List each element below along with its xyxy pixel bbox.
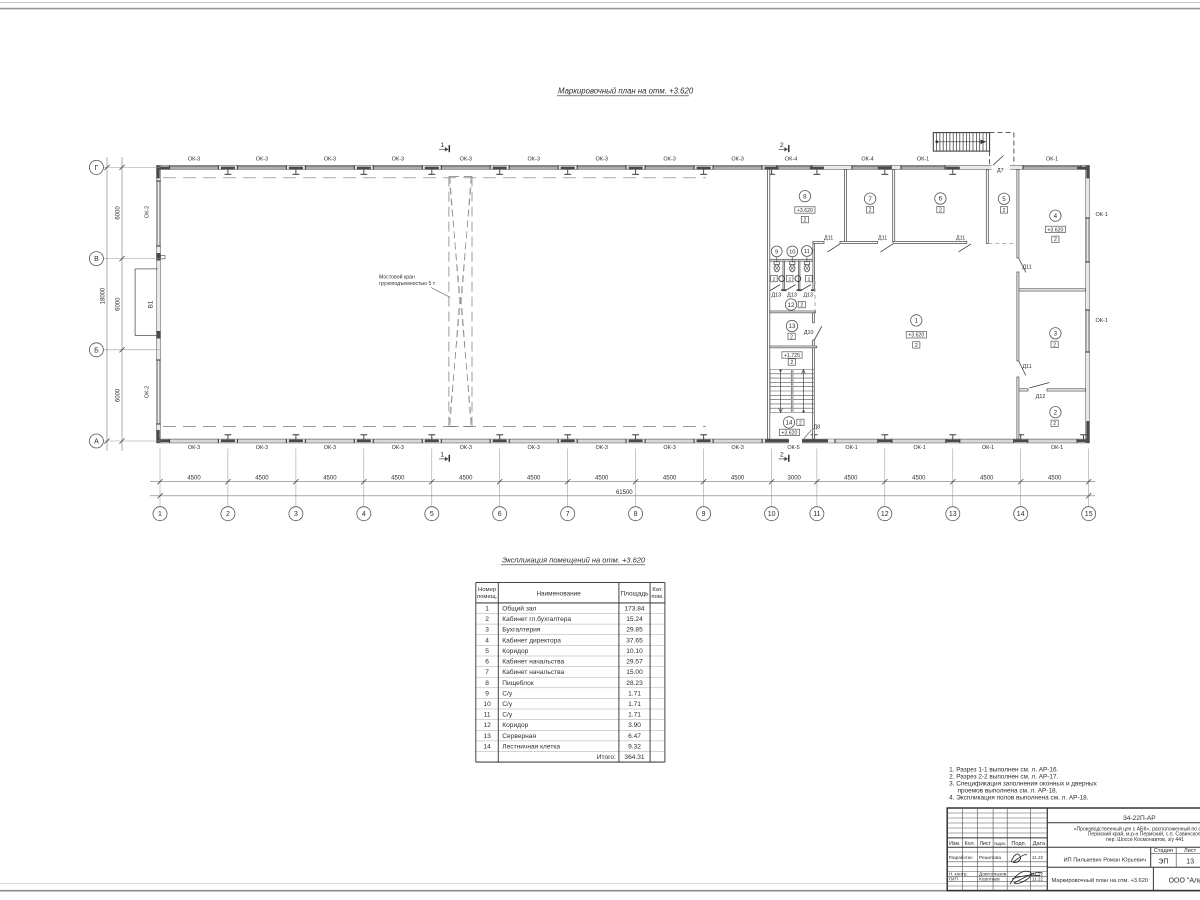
svg-text:4500: 4500 (459, 476, 473, 482)
svg-text:ОК-1: ОК-1 (1051, 445, 1063, 451)
svg-text:Изм.: Изм. (949, 841, 960, 847)
svg-text:Решетова: Решетова (979, 855, 1001, 861)
svg-text:Д11: Д11 (1023, 364, 1032, 370)
svg-text:С/у: С/у (502, 712, 513, 719)
svg-text:1. Разрез 1-1 выполнен см. л.: 1. Разрез 1-1 выполнен см. л. АР-16. (949, 766, 1058, 773)
svg-text:5: 5 (1002, 196, 1006, 203)
svg-text:2: 2 (780, 142, 784, 149)
svg-text:37.65: 37.65 (626, 637, 643, 644)
svg-text:1: 1 (158, 511, 162, 518)
svg-text:4500: 4500 (731, 476, 745, 482)
svg-text:2: 2 (939, 208, 942, 214)
svg-text:помещ.: помещ. (477, 594, 498, 600)
svg-text:Д11: Д11 (824, 236, 833, 242)
svg-text:Г: Г (95, 165, 99, 172)
svg-text:4500: 4500 (912, 476, 926, 482)
svg-text:4500: 4500 (527, 476, 541, 482)
svg-text:Площадь: Площадь (621, 590, 649, 597)
svg-text:2: 2 (1054, 237, 1057, 243)
svg-text:ОК-1: ОК-1 (917, 157, 929, 163)
svg-text:10.10: 10.10 (626, 648, 643, 655)
svg-text:Д11: Д11 (878, 236, 887, 242)
svg-text:3: 3 (485, 627, 489, 634)
svg-text:1: 1 (440, 142, 444, 149)
svg-text:2: 2 (800, 303, 803, 309)
svg-text:18000: 18000 (100, 287, 106, 304)
svg-text:9: 9 (702, 511, 706, 518)
svg-text:А: А (94, 439, 99, 446)
svg-text:9.32: 9.32 (628, 744, 641, 751)
svg-text:7: 7 (485, 669, 489, 676)
svg-text:Бухгалтерия: Бухгалтерия (502, 627, 541, 634)
svg-text:Коротаев: Коротаев (979, 877, 1000, 883)
svg-text:2: 2 (1054, 409, 1058, 416)
svg-text:1.71: 1.71 (628, 690, 641, 697)
svg-text:4500: 4500 (1048, 476, 1062, 482)
svg-text:+1.725: +1.725 (784, 353, 800, 359)
svg-text:34-22П-АР: 34-22П-АР (1123, 815, 1156, 822)
svg-text:Подп.: Подп. (1011, 841, 1026, 847)
svg-text:ОК-4: ОК-4 (785, 157, 797, 163)
svg-text:Кабинет директора: Кабинет директора (502, 636, 561, 644)
svg-text:10: 10 (789, 250, 795, 256)
svg-text:ОК-3: ОК-3 (731, 445, 743, 451)
svg-text:Д10: Д10 (804, 330, 814, 336)
svg-text:12: 12 (483, 722, 491, 729)
svg-text:ОК-3: ОК-3 (256, 157, 268, 163)
svg-text:3. Спецификация заполнения око: 3. Спецификация заполнения оконных и две… (949, 780, 1097, 787)
svg-text:ГИП: ГИП (949, 877, 958, 882)
svg-text:4: 4 (485, 637, 489, 644)
svg-text:15: 15 (1085, 511, 1093, 518)
svg-text:Д7: Д7 (997, 168, 1004, 174)
svg-text:2: 2 (1003, 208, 1006, 214)
svg-text:15.00: 15.00 (626, 669, 643, 676)
svg-text:ОК-3: ОК-3 (596, 445, 608, 451)
svg-text:11: 11 (804, 249, 810, 255)
svg-text:ОК-3: ОК-3 (324, 157, 336, 163)
svg-text:Лестничная клетка: Лестничная клетка (502, 744, 560, 751)
svg-text:ОК-1: ОК-1 (982, 445, 994, 451)
svg-text:1: 1 (440, 451, 444, 458)
svg-text:12: 12 (881, 511, 889, 518)
svg-text:6.47: 6.47 (628, 733, 641, 740)
svg-text:6000: 6000 (115, 388, 121, 402)
svg-text:1.71: 1.71 (628, 712, 641, 719)
svg-text:8: 8 (634, 511, 638, 518)
svg-text:8: 8 (803, 193, 807, 200)
svg-text:3.90: 3.90 (628, 722, 641, 729)
svg-text:Д12: Д12 (1036, 394, 1046, 400)
svg-text:1: 1 (915, 318, 919, 325)
svg-text:2: 2 (788, 277, 791, 283)
svg-text:29.57: 29.57 (626, 659, 643, 666)
svg-text:ЭП: ЭП (1158, 857, 1168, 866)
svg-text:4500: 4500 (980, 476, 994, 482)
svg-text:4500: 4500 (255, 476, 269, 482)
svg-text:Маркировочный план на отм. +3: Маркировочный план на отм. +3.620 (558, 87, 694, 96)
svg-text:Мостовой кран: Мостовой кран (379, 274, 415, 281)
svg-text:13: 13 (949, 511, 957, 518)
svg-text:4: 4 (362, 511, 366, 518)
svg-text:пом.: пом. (651, 594, 664, 600)
svg-text:Итого:: Итого: (597, 754, 616, 761)
svg-text:ОК-4: ОК-4 (861, 157, 873, 163)
svg-text:ОК-3: ОК-3 (392, 157, 404, 163)
svg-text:ООО "Альянс: ООО "Альянс (1169, 878, 1200, 885)
svg-text:+3.620: +3.620 (781, 430, 797, 436)
svg-text:2: 2 (485, 616, 489, 623)
svg-text:8: 8 (485, 680, 489, 687)
svg-text:В: В (94, 256, 99, 263)
svg-text:13: 13 (483, 733, 491, 740)
svg-text:5: 5 (485, 648, 489, 655)
svg-text:Экспликация помещений на отм.: Экспликация помещений на отм. +3.620 (502, 556, 646, 565)
svg-text:Общий зал: Общий зал (502, 605, 536, 613)
svg-text:173.84: 173.84 (624, 606, 645, 613)
svg-text:6: 6 (498, 511, 502, 518)
svg-text:11.22: 11.22 (1032, 855, 1044, 860)
svg-text:Дата: Дата (1033, 841, 1046, 847)
svg-text:ОК-3: ОК-3 (460, 157, 472, 163)
svg-text:ОК-2: ОК-2 (145, 206, 151, 218)
svg-text:Д13: Д13 (771, 293, 781, 299)
svg-text:1: 1 (485, 606, 489, 613)
svg-text:+3.620: +3.620 (797, 208, 813, 214)
svg-text:ОК-3: ОК-3 (663, 445, 675, 451)
svg-text:10: 10 (768, 511, 776, 518)
svg-text:ОК-1: ОК-1 (1096, 318, 1108, 324)
svg-text:4500: 4500 (663, 476, 677, 482)
svg-text:Коридор: Коридор (502, 648, 528, 655)
svg-text:ОК-3: ОК-3 (596, 157, 608, 163)
svg-text:пер. Шоссе Космонавтов, з/у 44: пер. Шоссе Космонавтов, з/у 441 (1106, 837, 1184, 843)
svg-text:13: 13 (1186, 857, 1194, 866)
svg-text:6: 6 (939, 196, 943, 203)
svg-text:Разработал: Разработал (949, 855, 973, 860)
svg-text:ОК-1: ОК-1 (1096, 212, 1108, 218)
svg-text:Кабинет начальства: Кабинет начальства (502, 658, 564, 666)
svg-text:Маркировочный план на отм. +3.: Маркировочный план на отм. +3.620 (1052, 877, 1149, 884)
svg-text:ОК-3: ОК-3 (731, 157, 743, 163)
svg-text:6000: 6000 (115, 297, 121, 311)
svg-text:грузоподъемностью 5 т: грузоподъемностью 5 т (379, 281, 436, 287)
svg-text:7: 7 (868, 196, 872, 203)
svg-text:Пищеблок: Пищеблок (502, 679, 533, 687)
svg-text:+3.620: +3.620 (908, 333, 924, 339)
svg-text:проемов выполнена см. л. АР-18: проемов выполнена см. л. АР-18. (958, 787, 1058, 794)
svg-text:11.22: 11.22 (1032, 877, 1044, 882)
svg-text:3: 3 (1054, 331, 1058, 338)
svg-text:15.24: 15.24 (626, 616, 643, 623)
svg-text:3: 3 (294, 511, 298, 518)
svg-text:Довгоглазов: Довгоглазов (979, 872, 1007, 878)
svg-text:Д13: Д13 (787, 293, 797, 299)
svg-text:ОК-3: ОК-3 (188, 157, 200, 163)
svg-text:4. Экспликация полов выполнена: 4. Экспликация полов выполнена см. л. АР… (949, 795, 1089, 802)
svg-text:Д11: Д11 (956, 236, 965, 242)
svg-text:Д13: Д13 (803, 293, 813, 299)
svg-text:Серверная: Серверная (502, 733, 536, 740)
svg-text:4500: 4500 (187, 476, 201, 482)
svg-text:7: 7 (566, 511, 570, 518)
svg-text:С/у: С/у (502, 690, 513, 697)
svg-text:2: 2 (790, 360, 793, 366)
svg-text:ОК-2: ОК-2 (145, 386, 151, 398)
svg-text:Лист: Лист (979, 841, 991, 847)
svg-text:ОК-3: ОК-3 (256, 445, 268, 451)
svg-text:13: 13 (789, 323, 796, 330)
svg-text:2: 2 (780, 451, 784, 458)
svg-text:ОК-3: ОК-3 (392, 445, 404, 451)
svg-text:Стадия: Стадия (1154, 848, 1173, 854)
svg-text:28.23: 28.23 (626, 680, 643, 687)
svg-text:2: 2 (803, 218, 806, 224)
svg-text:ОК-3: ОК-3 (188, 445, 200, 451)
svg-text:2: 2 (773, 277, 776, 283)
svg-text:ОК-3: ОК-3 (324, 445, 336, 451)
svg-text:11: 11 (813, 511, 820, 518)
svg-text:2: 2 (790, 334, 793, 340)
svg-text:29.85: 29.85 (626, 627, 643, 634)
svg-text:9: 9 (775, 250, 778, 256)
svg-text:№док.: №док. (994, 841, 1006, 846)
svg-text:2: 2 (226, 511, 230, 518)
svg-text:4500: 4500 (844, 476, 858, 482)
svg-text:ИП Пилькевич Роман Юрьевич: ИП Пилькевич Роман Юрьевич (1063, 857, 1145, 863)
svg-text:Кат.: Кат. (652, 587, 663, 593)
svg-text:Номер: Номер (478, 587, 497, 593)
svg-text:2: 2 (915, 343, 918, 349)
svg-text:ОК-3: ОК-3 (528, 157, 540, 163)
svg-text:10: 10 (483, 701, 491, 708)
svg-text:1.71: 1.71 (628, 701, 641, 708)
svg-text:Наименование: Наименование (536, 590, 581, 597)
svg-text:Кол.: Кол. (965, 841, 975, 847)
svg-text:В1: В1 (148, 300, 155, 308)
svg-text:С/у: С/у (502, 701, 513, 708)
svg-text:61500: 61500 (616, 490, 633, 496)
svg-text:ОК-3: ОК-3 (663, 157, 675, 163)
svg-text:2: 2 (1053, 421, 1056, 427)
svg-text:364.31: 364.31 (624, 754, 645, 761)
svg-text:2: 2 (799, 420, 802, 426)
svg-text:12: 12 (788, 302, 795, 309)
svg-text:4500: 4500 (323, 476, 337, 482)
svg-text:5: 5 (430, 511, 434, 518)
svg-text:Б: Б (94, 347, 99, 354)
svg-text:ОК-1: ОК-1 (845, 445, 857, 451)
svg-text:Д11: Д11 (1023, 265, 1032, 271)
svg-text:6000: 6000 (115, 206, 121, 220)
svg-text:14: 14 (1017, 511, 1025, 518)
svg-text:Коридор: Коридор (502, 722, 528, 729)
svg-text:ОК-1: ОК-1 (1046, 157, 1058, 163)
svg-text:9: 9 (485, 690, 489, 697)
svg-text:14: 14 (483, 744, 491, 751)
svg-text:6: 6 (485, 659, 489, 666)
svg-text:ОК-3: ОК-3 (528, 445, 540, 451)
svg-text:11: 11 (484, 712, 491, 719)
svg-text:2. Разрез 2-2 выполнен см. л.: 2. Разрез 2-2 выполнен см. л. АР-17. (949, 773, 1058, 780)
svg-text:2: 2 (808, 277, 811, 283)
svg-text:4500: 4500 (595, 476, 609, 482)
svg-text:+3.620: +3.620 (1047, 227, 1063, 233)
svg-text:Лист: Лист (1184, 848, 1197, 854)
svg-text:Кабинет гл.бухгалтера: Кабинет гл.бухгалтера (502, 615, 571, 623)
svg-text:3000: 3000 (788, 476, 802, 482)
svg-text:2: 2 (869, 208, 872, 214)
svg-text:2: 2 (1053, 342, 1056, 348)
svg-text:ОК-1: ОК-1 (913, 445, 925, 451)
svg-text:ОК-3: ОК-3 (460, 445, 472, 451)
svg-text:4500: 4500 (391, 476, 405, 482)
svg-text:Д8: Д8 (814, 425, 821, 431)
svg-text:14: 14 (786, 420, 793, 427)
svg-text:4: 4 (1054, 213, 1058, 220)
svg-text:ОК-5: ОК-5 (787, 445, 799, 451)
svg-text:Кабинет начальства: Кабинет начальства (502, 668, 564, 676)
